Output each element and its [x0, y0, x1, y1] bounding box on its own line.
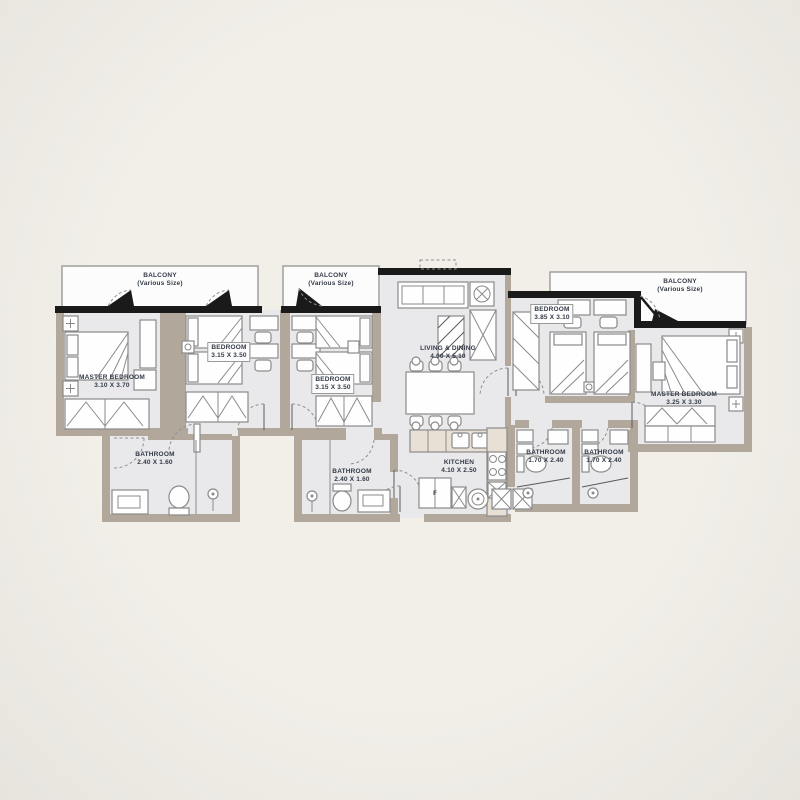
room-label-bathroom-mid: BATHROOM 2.40 X 1.60	[332, 468, 371, 484]
chair	[255, 360, 271, 371]
room-name: BEDROOM	[315, 376, 350, 384]
ac-unit	[420, 260, 456, 269]
desk	[594, 300, 626, 315]
room-name: KITCHEN	[441, 459, 476, 467]
room-name: BATHROOM	[135, 451, 174, 459]
room-label-bedroom-mid: BEDROOM 3.15 X 3.50	[311, 374, 354, 394]
pillow	[67, 335, 78, 355]
room-label-bathroom-left: BATHROOM 2.40 X 1.60	[135, 451, 174, 467]
room-dims: (Various Size)	[137, 280, 182, 288]
toilet	[333, 491, 351, 511]
room-dims: 2.40 X 1.60	[135, 459, 174, 467]
room-name: BATHROOM	[526, 449, 565, 457]
room-name: BALCONY	[137, 272, 182, 280]
pillow	[360, 354, 370, 382]
toilet	[169, 486, 189, 508]
room-label-kitchen: KITCHEN 4.10 X 2.50	[441, 459, 476, 475]
room-dims: 1.70 X 2.40	[584, 457, 623, 465]
pillow	[67, 357, 78, 377]
room-dims: (Various Size)	[657, 286, 702, 294]
floor-plan-canvas: BALCONY (Various Size) BALCONY (Various …	[0, 0, 800, 800]
pillow	[598, 334, 626, 345]
room-label-balcony-right: BALCONY (Various Size)	[657, 278, 702, 294]
room-label-balcony-left: BALCONY (Various Size)	[137, 272, 182, 288]
room-label-bathroom-right2: BATHROOM 1.70 X 2.40	[584, 449, 623, 465]
cistern	[582, 430, 598, 442]
room-label-bedroom-right: BEDROOM 3.85 X 3.10	[530, 304, 573, 324]
wardrobe	[645, 406, 715, 426]
chair	[255, 332, 271, 343]
vanity-sink	[610, 430, 628, 444]
room-name: MASTER BEDROOM	[651, 391, 717, 399]
room-name: BALCONY	[308, 272, 353, 280]
room-name: BALCONY	[657, 278, 702, 286]
desk	[250, 316, 278, 330]
desk	[140, 320, 156, 368]
room-label-master-left: MASTER BEDROOM 3.10 X 3.70	[79, 374, 145, 390]
pillow	[727, 340, 737, 362]
wardrobe	[65, 399, 149, 429]
pillow	[727, 366, 737, 388]
pillow	[188, 354, 198, 382]
room-dims: 3.15 X 3.50	[315, 384, 350, 392]
room-label-bathroom-right1: BATHROOM 1.70 X 2.40	[526, 449, 565, 465]
room-dims: 3.15 X 3.50	[211, 352, 246, 360]
fridge-label: F	[433, 490, 437, 498]
dining-table	[406, 372, 474, 414]
chair	[297, 360, 313, 371]
desk	[250, 344, 278, 358]
room-dims: 3.85 X 3.10	[534, 314, 569, 322]
cistern	[517, 430, 533, 442]
room-dims: 4.10 X 2.50	[441, 467, 476, 475]
room-name: BATHROOM	[332, 468, 371, 476]
bedside-table	[348, 341, 359, 353]
room-dims: 3.25 X 3.30	[651, 399, 717, 407]
room-dims: 3.10 X 3.70	[79, 382, 145, 390]
desk	[636, 344, 651, 392]
pillow	[360, 318, 370, 346]
vanity-sink	[548, 430, 568, 444]
room-label-balcony-mid: BALCONY (Various Size)	[308, 272, 353, 288]
vanity-sink	[112, 490, 148, 514]
room-name: BEDROOM	[211, 344, 246, 352]
chair	[600, 317, 617, 328]
room-label-living: LIVING & DINING 4.00 X 5.10	[420, 345, 476, 361]
room-name: MASTER BEDROOM	[79, 374, 145, 382]
bedside-table	[182, 341, 194, 353]
room-label-bedroom-left: BEDROOM 3.15 X 3.50	[207, 342, 250, 362]
kitchen-sink	[452, 433, 469, 448]
chair	[653, 362, 665, 380]
pillow	[554, 334, 582, 345]
room-dims: 2.40 X 1.60	[332, 476, 371, 484]
appliance-letter: F	[433, 490, 437, 498]
room-dims: 4.00 X 5.10	[420, 353, 476, 361]
room-name: BEDROOM	[534, 306, 569, 314]
chair	[297, 332, 313, 343]
room-dims: 1.70 X 2.40	[526, 457, 565, 465]
room-name: BATHROOM	[584, 449, 623, 457]
furniture-master-left	[63, 316, 156, 429]
room-label-master-right: MASTER BEDROOM 3.25 X 3.30	[651, 391, 717, 407]
room-name: LIVING & DINING	[420, 345, 476, 353]
room-dims: (Various Size)	[308, 280, 353, 288]
